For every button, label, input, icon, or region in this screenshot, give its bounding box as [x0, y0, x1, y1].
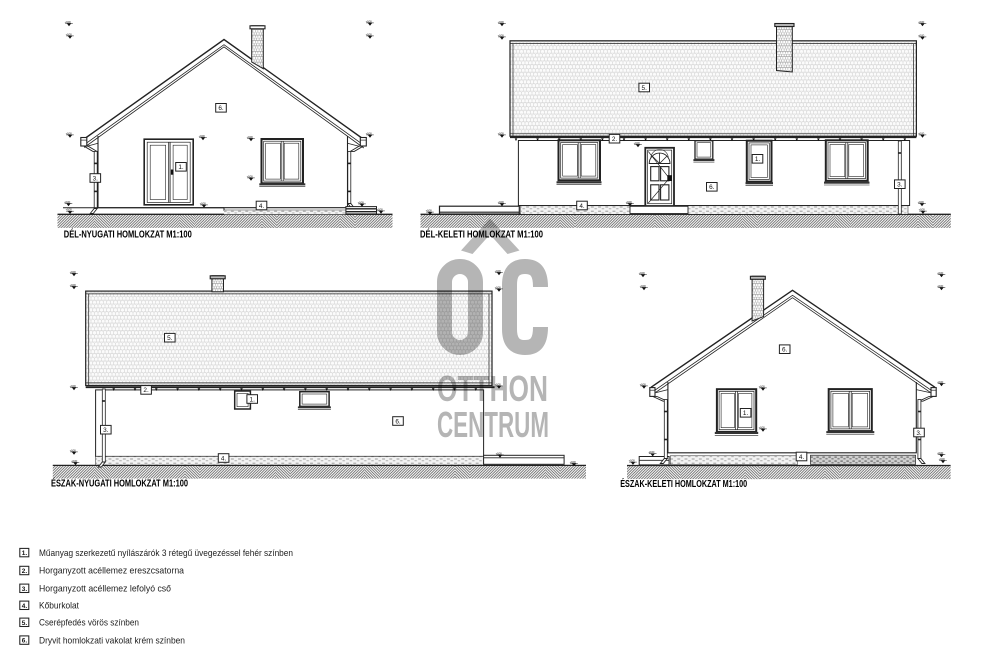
svg-text:Horganyzott acéllemez ereszcsa: Horganyzott acéllemez ereszcsatorna: [39, 566, 185, 576]
svg-text:Horganyzott acéllemez lefolyó: Horganyzott acéllemez lefolyó cső: [39, 584, 171, 594]
svg-text:5.: 5.: [167, 335, 173, 342]
svg-text:Dryvit homlokzati vakolat krém: Dryvit homlokzati vakolat krém színben: [39, 635, 185, 645]
svg-text:1.: 1.: [743, 410, 749, 417]
svg-text:DÉL-NYUGATI HOMLOKZAT M1:100: DÉL-NYUGATI HOMLOKZAT M1:100: [64, 228, 192, 241]
svg-text:1.: 1.: [178, 164, 184, 171]
svg-text:ÉSZAK-NYUGATI HOMLOKZAT M1:100: ÉSZAK-NYUGATI HOMLOKZAT M1:100: [51, 477, 188, 490]
svg-text:6.: 6.: [22, 638, 28, 645]
svg-text:ÉSZAK-KELETI HOMLOKZAT M1:100: ÉSZAK-KELETI HOMLOKZAT M1:100: [620, 477, 747, 490]
svg-text:6.: 6.: [395, 418, 401, 425]
svg-text:1.: 1.: [250, 396, 256, 403]
svg-text:OTTHON: OTTHON: [437, 368, 548, 409]
svg-text:Műanyag szerkezetű nyílászárók: Műanyag szerkezetű nyílászárók 3 rétegű …: [39, 548, 293, 558]
svg-text:6.: 6.: [782, 347, 788, 354]
svg-text:2.: 2.: [22, 568, 28, 575]
svg-text:CENTRUM: CENTRUM: [437, 404, 549, 445]
svg-text:6.: 6.: [709, 184, 715, 191]
svg-text:4.: 4.: [799, 454, 805, 461]
svg-text:3.: 3.: [22, 586, 28, 593]
svg-text:2.: 2.: [612, 136, 618, 143]
svg-text:2.: 2.: [143, 387, 149, 394]
svg-text:1.: 1.: [755, 156, 761, 163]
svg-text:4.: 4.: [579, 203, 585, 210]
svg-text:6.: 6.: [218, 105, 224, 112]
svg-text:4.: 4.: [22, 603, 28, 610]
svg-text:3.: 3.: [916, 430, 922, 437]
svg-text:4.: 4.: [221, 455, 227, 462]
svg-text:Kőburkolat: Kőburkolat: [39, 601, 79, 611]
svg-text:1.: 1.: [22, 550, 28, 557]
svg-text:5.: 5.: [22, 620, 28, 627]
svg-text:3.: 3.: [897, 182, 903, 189]
svg-text:4.: 4.: [259, 203, 265, 210]
svg-text:Cserépfedés vörös színben: Cserépfedés vörös színben: [39, 618, 139, 628]
svg-text:5.: 5.: [642, 85, 648, 92]
svg-text:3.: 3.: [93, 175, 99, 182]
svg-text:3.: 3.: [103, 427, 109, 434]
